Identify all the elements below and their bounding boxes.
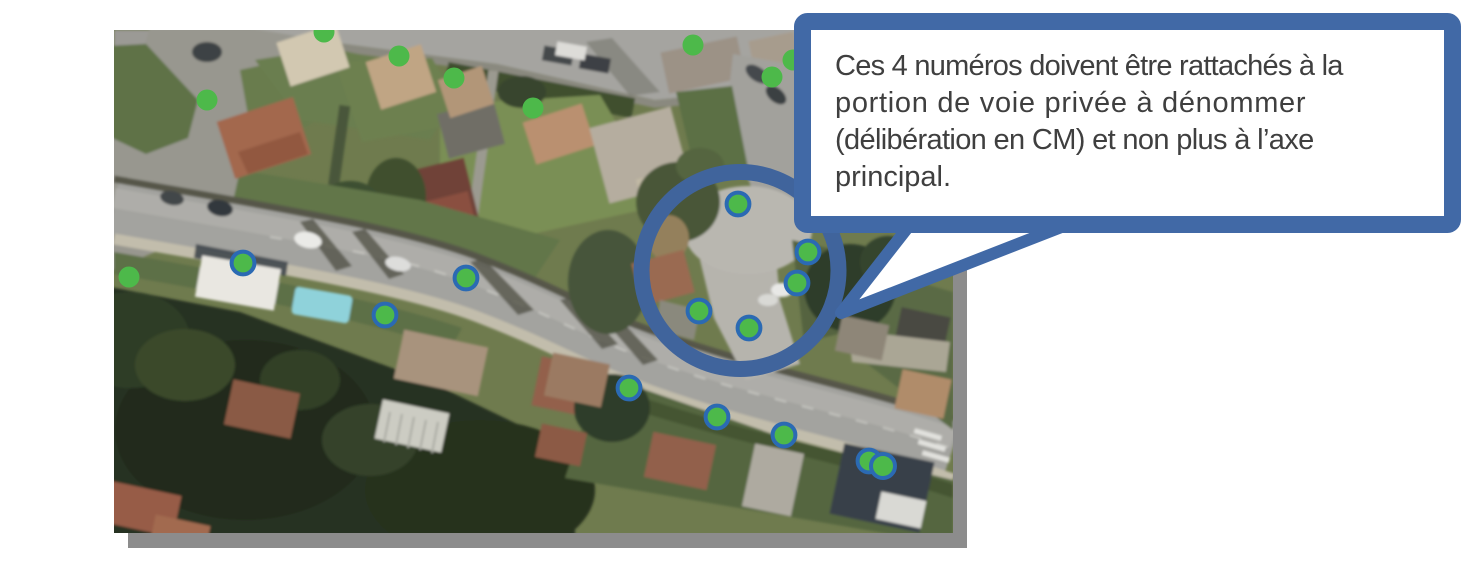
- svg-text:Ces 4 numéros doivent être rat: Ces 4 numéros doivent être rattachés à l…: [835, 50, 1344, 82]
- svg-text:portion de voie privée à dénom: portion de voie privée à dénommer: [835, 87, 1306, 119]
- svg-text:(délibération en CM) et non pl: (délibération en CM) et non plus à l’axe: [835, 124, 1314, 156]
- svg-text:principal.: principal.: [835, 161, 951, 193]
